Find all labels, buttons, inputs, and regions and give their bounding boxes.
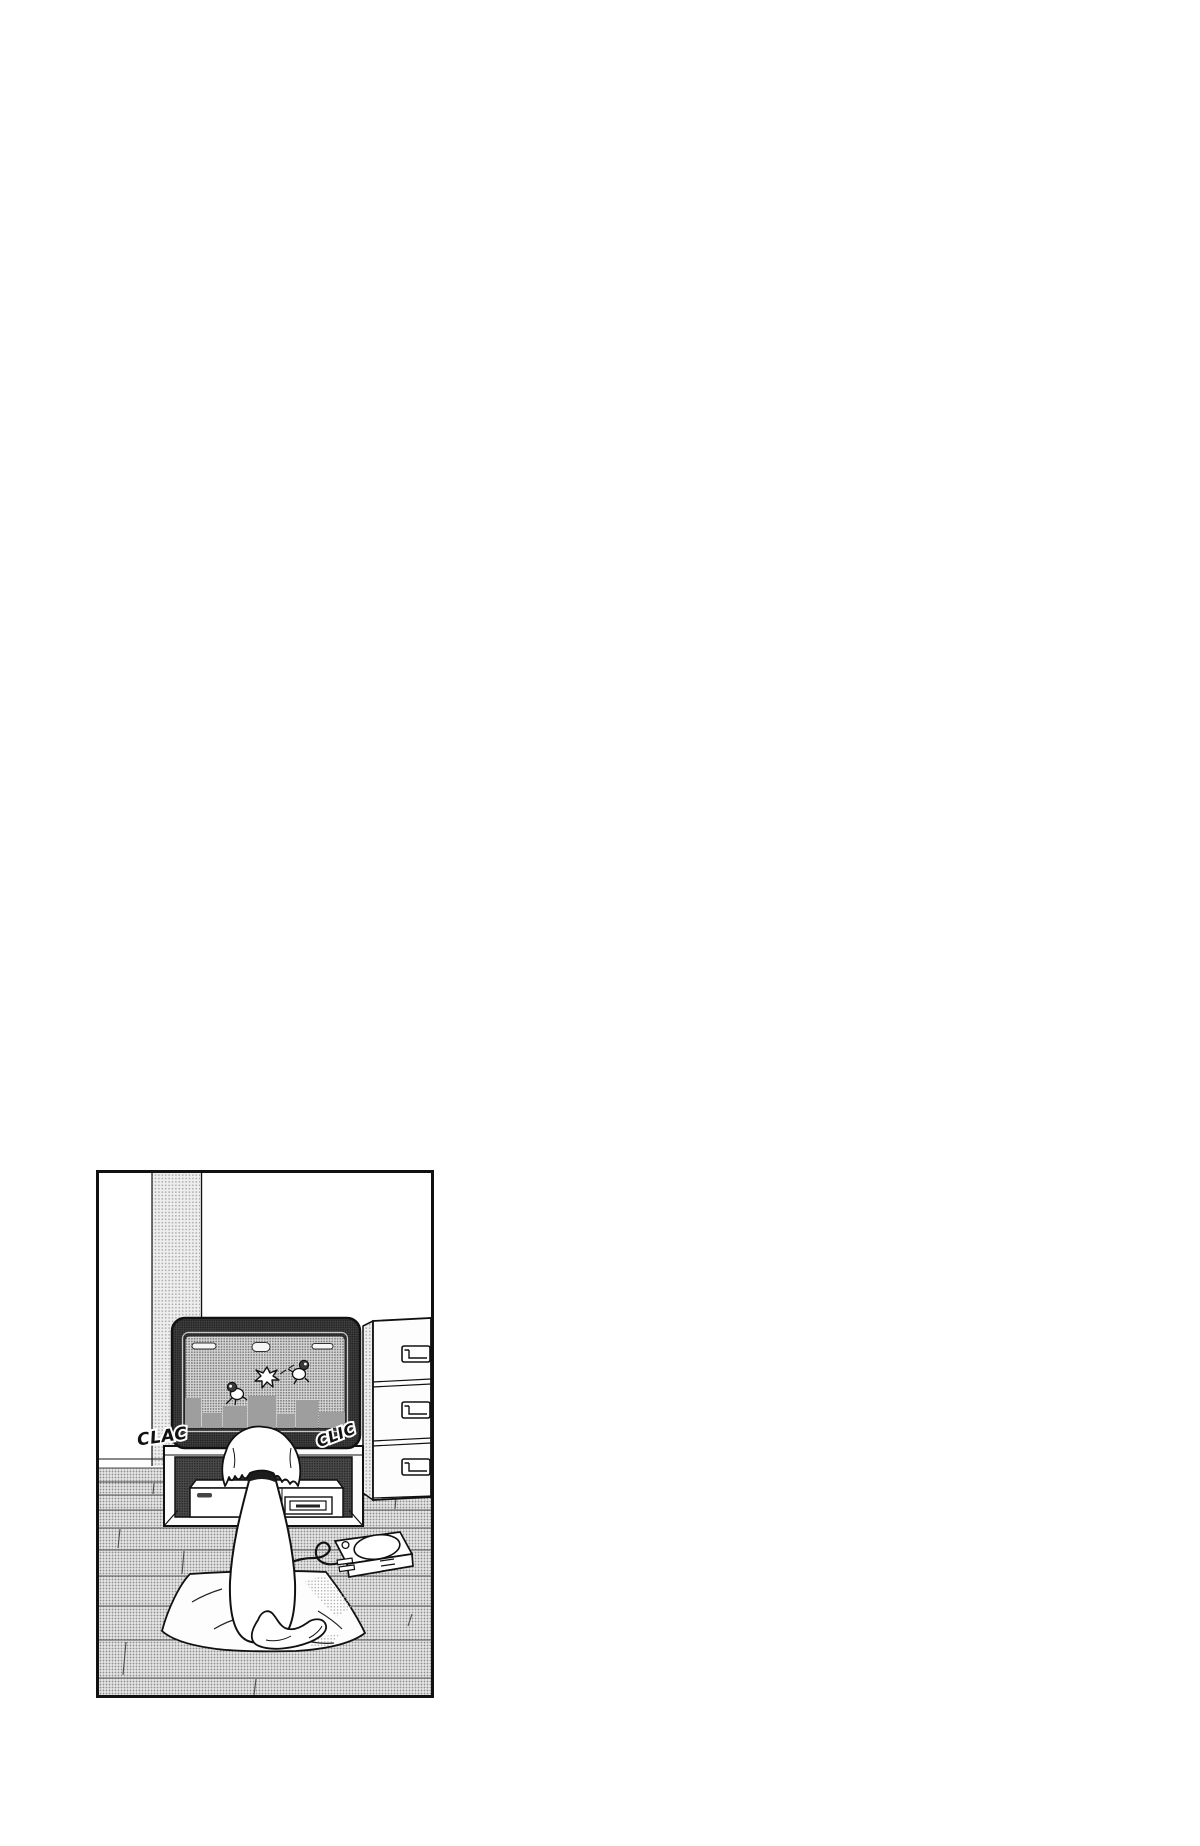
drawer-handle: [402, 1459, 430, 1475]
manga-page: CLAC CLIC: [0, 0, 1200, 1846]
timer-pill: [252, 1343, 270, 1352]
health-bar-left: [192, 1343, 216, 1349]
drawer-cabinet: [363, 1318, 431, 1500]
health-bar-right: [312, 1344, 333, 1350]
vcr-tray-slot: [296, 1505, 320, 1508]
console-power-button: [342, 1542, 349, 1549]
panel-artwork: CLAC CLIC: [96, 1170, 434, 1698]
cabinet-side-face: [363, 1321, 373, 1500]
drawer-handle: [402, 1402, 430, 1418]
drawer-handle: [402, 1346, 430, 1362]
comic-panel: CLAC CLIC: [96, 1170, 434, 1698]
vcr-buttons: [197, 1493, 212, 1498]
